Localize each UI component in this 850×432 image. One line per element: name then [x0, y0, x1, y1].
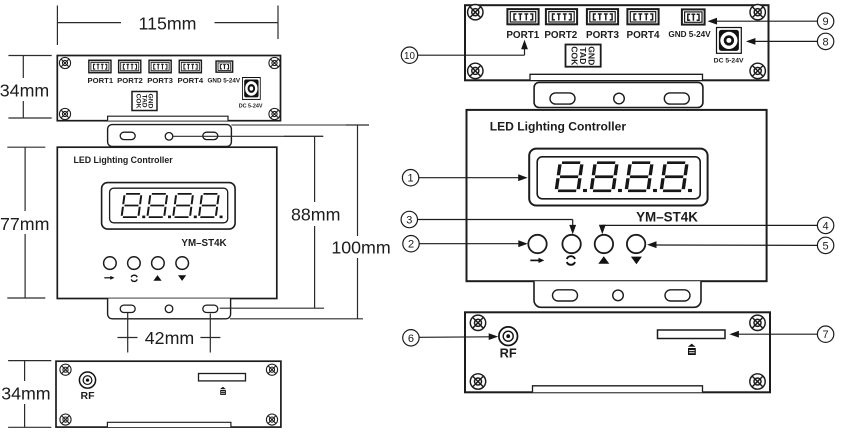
- svg-text:YM–ST4K: YM–ST4K: [181, 238, 226, 249]
- svg-text:7: 7: [823, 329, 829, 341]
- svg-text:PORT3: PORT3: [586, 30, 619, 41]
- svg-text:34mm: 34mm: [0, 81, 49, 101]
- svg-text:5: 5: [823, 240, 829, 252]
- svg-text:DC 5-24V: DC 5-24V: [239, 103, 263, 109]
- svg-text:YM–ST4K: YM–ST4K: [636, 210, 698, 225]
- svg-text:GND 5-24V: GND 5-24V: [208, 78, 241, 85]
- svg-text:115mm: 115mm: [139, 14, 197, 34]
- svg-text:PORT4: PORT4: [627, 30, 660, 41]
- svg-text:RF: RF: [81, 390, 96, 402]
- svg-text:100mm: 100mm: [331, 238, 390, 258]
- svg-text:6: 6: [408, 333, 414, 345]
- svg-text:TAD: TAD: [141, 94, 148, 107]
- svg-text:PORT2: PORT2: [117, 76, 143, 85]
- svg-text:9: 9: [823, 16, 829, 28]
- svg-text:3: 3: [406, 215, 412, 227]
- svg-text:88mm: 88mm: [291, 205, 340, 225]
- svg-text:8: 8: [823, 36, 829, 48]
- svg-text:1: 1: [408, 173, 414, 185]
- svg-text:LED Lighting Controller: LED Lighting Controller: [74, 155, 174, 165]
- svg-text:PORT3: PORT3: [147, 76, 173, 85]
- svg-text:PORT1: PORT1: [87, 76, 113, 85]
- svg-text:RF: RF: [500, 346, 517, 361]
- svg-text:77mm: 77mm: [0, 214, 49, 234]
- svg-text:GND 5-24V: GND 5-24V: [668, 30, 711, 39]
- svg-text:34mm: 34mm: [1, 384, 50, 404]
- svg-text:PORT4: PORT4: [177, 76, 203, 85]
- svg-text:DC 5-24V: DC 5-24V: [714, 58, 744, 65]
- svg-text:COK: COK: [135, 94, 142, 109]
- svg-text:42mm: 42mm: [145, 328, 194, 348]
- svg-text:GND: GND: [586, 46, 596, 65]
- svg-text:PORT2: PORT2: [544, 30, 577, 41]
- svg-text:4: 4: [823, 220, 829, 232]
- svg-text:10: 10: [404, 51, 415, 62]
- svg-text:LED Lighting Controller: LED Lighting Controller: [490, 119, 627, 133]
- svg-text:GND: GND: [147, 94, 154, 109]
- svg-text:PORT1: PORT1: [506, 30, 539, 41]
- svg-text:2: 2: [408, 239, 414, 251]
